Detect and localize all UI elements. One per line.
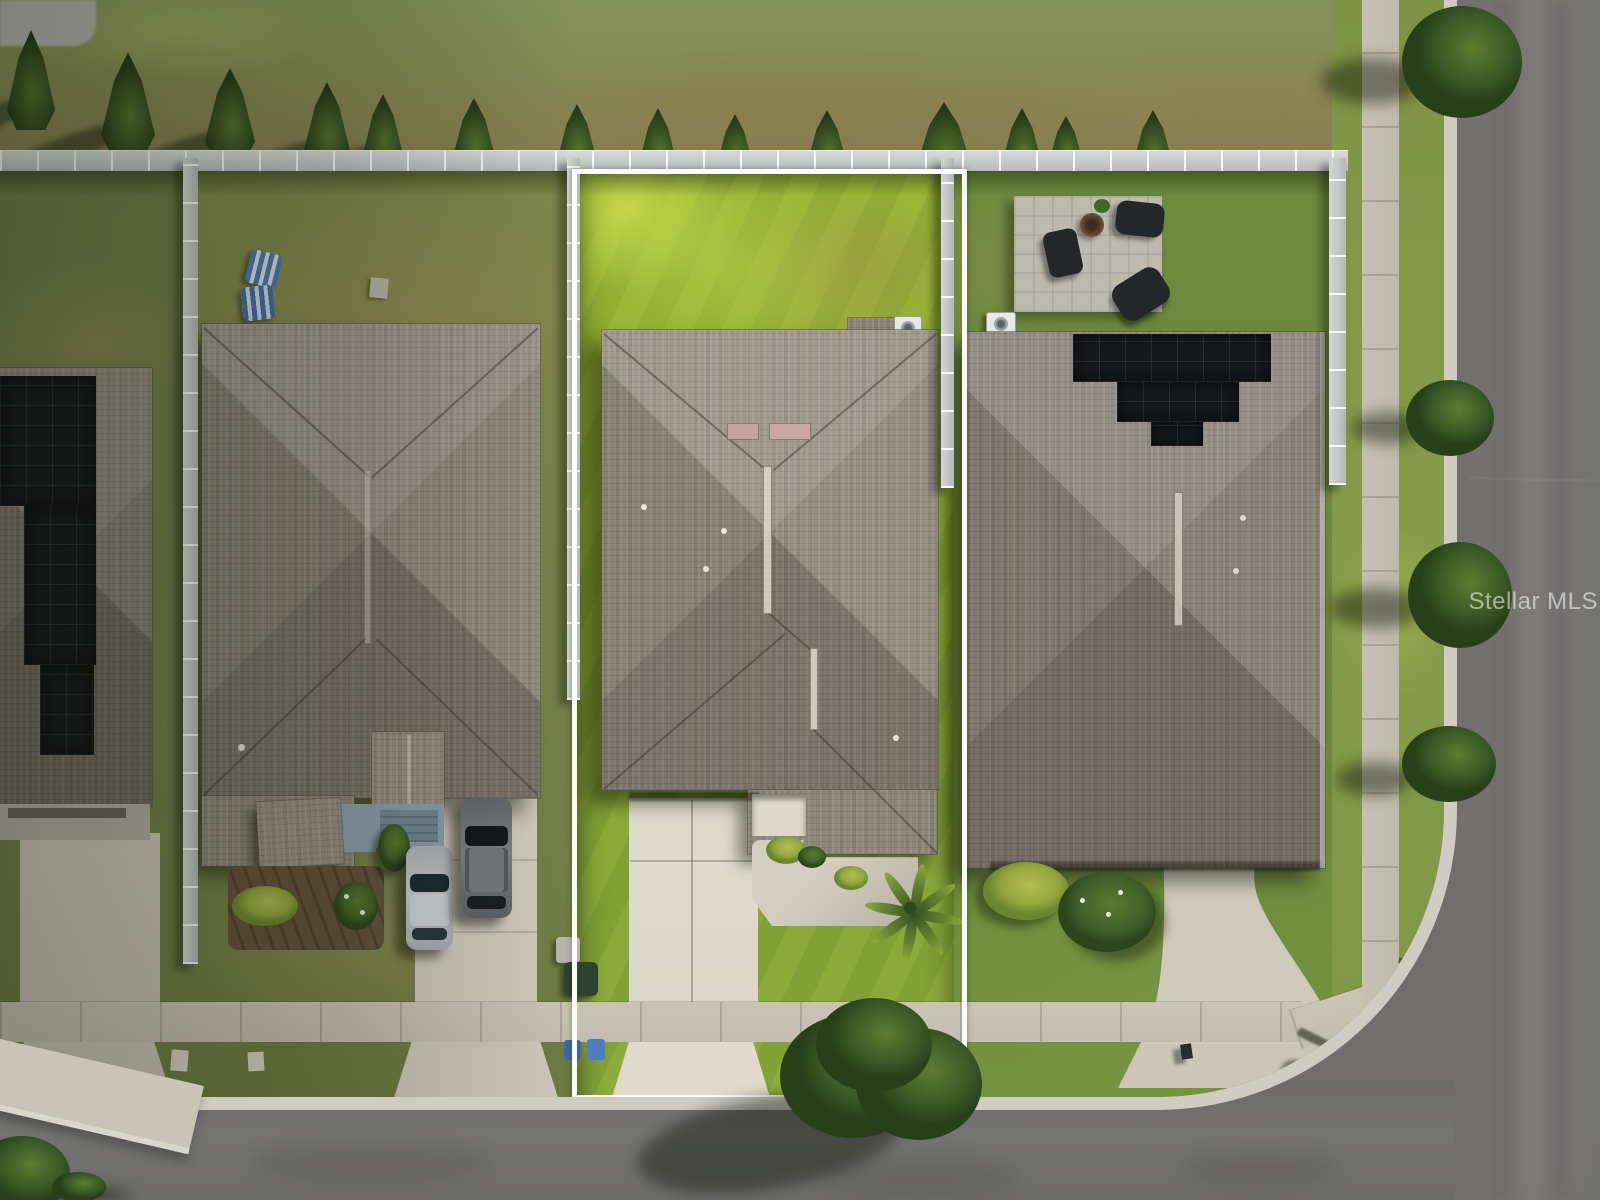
- far-left-house-wall: [0, 804, 150, 840]
- left-house-garage-gable: [372, 732, 444, 806]
- far-left-house-roof: [0, 368, 152, 806]
- right-house-roof: [965, 332, 1325, 868]
- ridge-vent: [364, 470, 371, 644]
- roof-vent-dot: [238, 744, 245, 751]
- shrub: [232, 886, 298, 926]
- aerial-photo: Stellar MLS: [0, 0, 1600, 1200]
- street-tree: [816, 998, 932, 1092]
- mailbox: [1180, 1043, 1193, 1059]
- sidewalk-vertical: [1362, 0, 1399, 1016]
- privacy-fence-back: [0, 150, 1348, 171]
- white-flower: [1106, 912, 1111, 917]
- sedan-rear-window: [412, 928, 447, 940]
- corner-tree: [52, 1172, 106, 1200]
- solar-panel-array: [24, 505, 96, 665]
- white-flower: [360, 910, 365, 915]
- sedan-windshield: [410, 874, 449, 892]
- left-house-roof: [202, 324, 540, 798]
- garage-door-shadow: [8, 808, 126, 818]
- front-bush: [1058, 872, 1156, 952]
- solar-panel-array: [1117, 382, 1239, 422]
- roof-vent-dot: [1240, 515, 1246, 521]
- solar-panel-array: [1073, 334, 1271, 382]
- solar-panel-array: [40, 665, 94, 755]
- roof-vent-dot: [1233, 568, 1239, 574]
- asphalt-blotch: [1180, 1150, 1340, 1186]
- white-flower: [344, 894, 349, 899]
- street-name-sign-cross: [1434, 960, 1457, 968]
- ground-paver: [248, 1052, 265, 1072]
- solar-panel-array: [0, 376, 96, 506]
- ridge-vent: [1174, 492, 1183, 626]
- left-house-porch-gable: [256, 798, 343, 868]
- subject-property-outline: [572, 169, 967, 1100]
- gutter-edge: [1320, 332, 1325, 868]
- verge-tree: [1402, 726, 1496, 802]
- suv-rear-window: [467, 896, 506, 909]
- white-flower: [1118, 890, 1123, 895]
- parked-sedan: [406, 846, 453, 950]
- parked-suv: [461, 798, 512, 918]
- front-bush: [983, 862, 1069, 920]
- land-block: [0, 0, 1457, 1110]
- asphalt-blotch: [250, 1140, 490, 1184]
- verge-tree: [1406, 380, 1494, 456]
- suv-windshield: [465, 826, 508, 846]
- street-light-shadow-head: [1281, 1060, 1305, 1084]
- tactile-ramp-pad: [1358, 1019, 1404, 1063]
- watermark: Stellar MLS: [1468, 588, 1598, 616]
- solar-panel-array: [1151, 422, 1203, 446]
- verge-tree: [1402, 6, 1522, 118]
- left-house-wall: [338, 804, 376, 852]
- tree-shadow: [1336, 762, 1412, 796]
- sedan-roof: [410, 894, 449, 926]
- privacy-fence-left: [183, 158, 198, 964]
- gable-ridge: [406, 734, 412, 806]
- flowering-bush: [334, 882, 378, 930]
- white-flower: [1080, 898, 1085, 903]
- privacy-fence-right: [1329, 158, 1346, 485]
- ground-paver: [170, 1049, 188, 1071]
- right-driveway-apron: [1118, 1044, 1352, 1088]
- suv-roof: [465, 848, 508, 892]
- asphalt-seam: [1470, 476, 1600, 482]
